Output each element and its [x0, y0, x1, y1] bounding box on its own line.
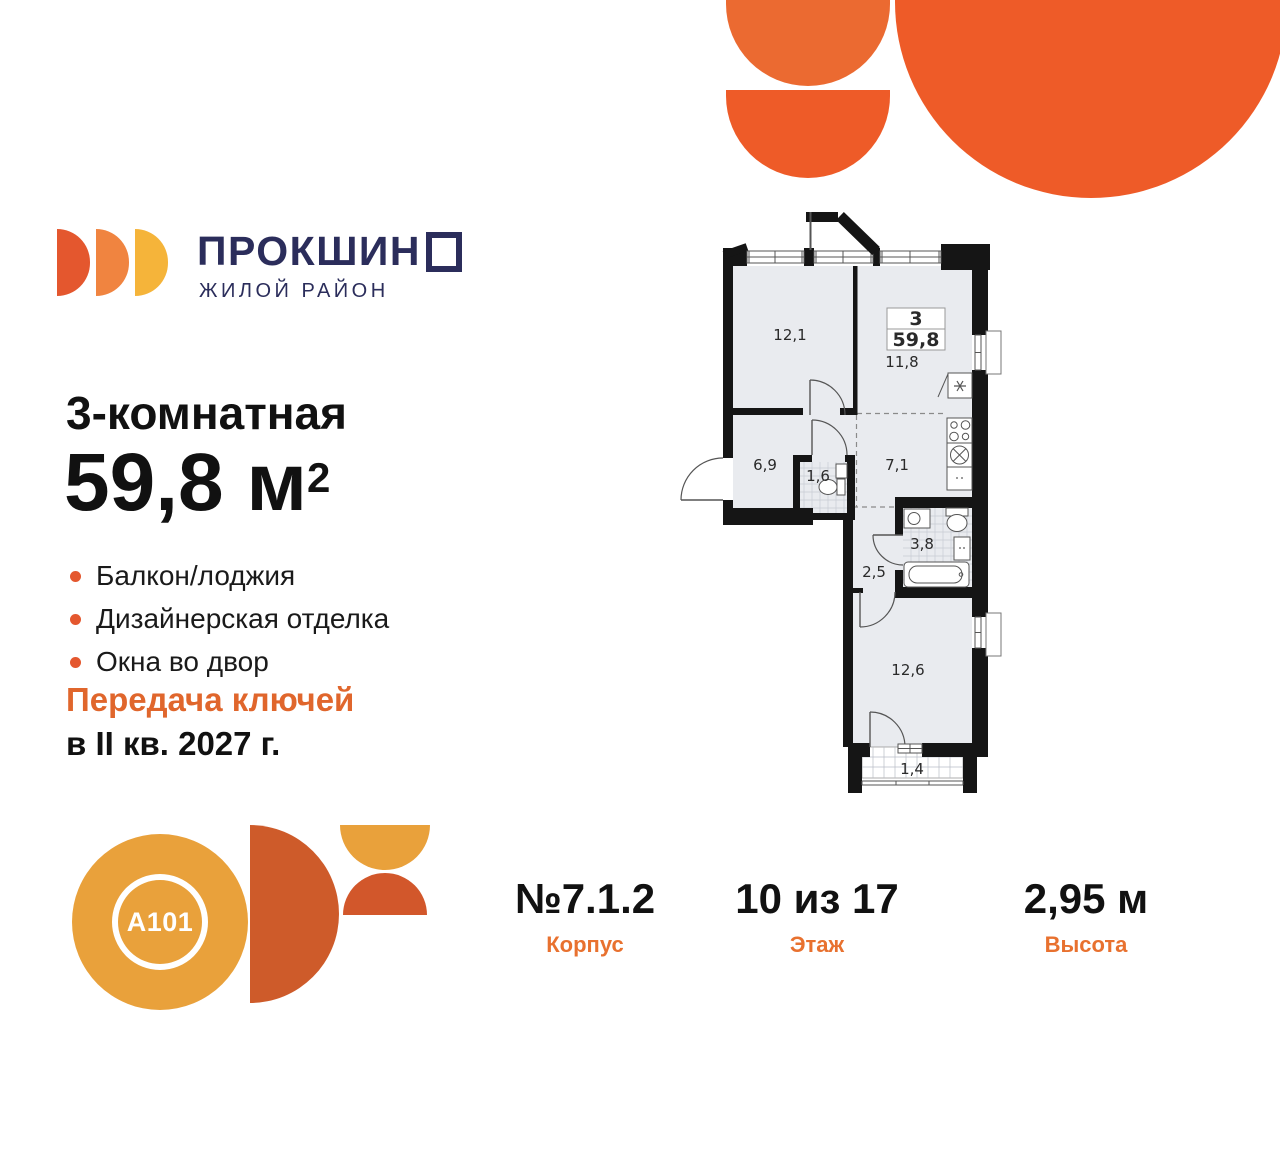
- wall: [895, 497, 988, 508]
- deco-halfcircle-small-bottom: [726, 90, 890, 178]
- wall: [853, 588, 863, 593]
- brand-subtitle: ЖИЛОЙ РАЙОН: [199, 280, 389, 303]
- feature-item: Балкон/лоджия: [70, 560, 389, 592]
- deco-halfcircle-gold: [340, 825, 430, 870]
- room-area-label: 12,6: [891, 661, 924, 679]
- feature-item: Окна во двор: [70, 646, 389, 678]
- feature-list: Балкон/лоджия Дизайнерская отделка Окна …: [70, 560, 389, 689]
- wall: [847, 455, 855, 520]
- developer-badge-ring: A101: [112, 874, 208, 970]
- stat-building-value: №7.1.2: [465, 876, 705, 922]
- counter: [947, 467, 972, 490]
- bathroom-sink: [954, 537, 970, 560]
- room-area-label: 12,1: [773, 326, 806, 344]
- wc-sink: [836, 464, 847, 478]
- stat-height: 2,95 м Высота: [966, 876, 1206, 958]
- wall: [972, 370, 988, 617]
- toilet-bowl: [947, 515, 967, 532]
- balcony-door-window: [898, 744, 922, 753]
- feature-label: Дизайнерская отделка: [96, 603, 389, 635]
- deco-halfcircle-d: [250, 825, 339, 1003]
- unit-rooms-count: 3: [909, 308, 922, 330]
- wall: [853, 266, 858, 415]
- stat-building-label: Корпус: [465, 932, 705, 958]
- counter-handle-dot: [961, 477, 963, 479]
- wall: [963, 747, 977, 793]
- sink-tap-dot: [959, 547, 961, 549]
- balcony-diagonal-wall: [840, 216, 876, 251]
- room-area-label: 1,6: [806, 467, 830, 485]
- stat-height-label: Высота: [966, 932, 1206, 958]
- room-area-label: 7,1: [885, 456, 909, 474]
- feature-item: Дизайнерская отделка: [70, 603, 389, 635]
- window: [972, 331, 1001, 374]
- listing-title: 3-комнатная: [66, 386, 347, 440]
- stat-floor: 10 из 17 Этаж: [697, 876, 937, 958]
- floor-plan: 3 59,8 12,1 11,8 6,9 1,6 7,1 3,8 2,5 12,…: [670, 200, 1010, 820]
- wall: [723, 266, 733, 458]
- room-area-label: 6,9: [753, 456, 777, 474]
- logo-petal-icon: [57, 229, 90, 296]
- wall: [843, 513, 853, 747]
- brand-wordmark: ПРОКШИНО: [197, 231, 462, 272]
- deco-halfcircle-small-top: [726, 0, 890, 86]
- room-area-label: 11,8: [885, 353, 918, 371]
- listing-area: 59,8 м2: [64, 442, 330, 524]
- wall: [895, 497, 903, 535]
- stat-floor-value: 10 из 17: [697, 876, 937, 922]
- deco-halfcircle-large: [895, 0, 1280, 198]
- logo-petal-icon: [135, 229, 168, 296]
- bullet-dot-icon: [70, 657, 81, 668]
- room-area-label: 2,5: [862, 563, 886, 581]
- brand-square-o-glyph: О: [426, 232, 462, 272]
- listing-flyer: { "logo": { "brand_main": "ПРОКШИН", "br…: [0, 0, 1280, 1160]
- keys-handover-line2: в II кв. 2027 г.: [66, 725, 280, 763]
- room-area-label: 1,4: [900, 760, 924, 778]
- toilet-tank: [837, 479, 845, 495]
- wall: [848, 747, 862, 793]
- sink-tap-dot: [963, 547, 965, 549]
- entrance-door-arc: [681, 458, 723, 500]
- deco-halfcircle-orange: [343, 873, 427, 915]
- stat-floor-label: Этаж: [697, 932, 937, 958]
- feature-label: Окна во двор: [96, 646, 269, 678]
- stat-building: №7.1.2 Корпус: [465, 876, 705, 958]
- bullet-dot-icon: [70, 571, 81, 582]
- developer-badge-label: A101: [127, 907, 194, 938]
- bullet-dot-icon: [70, 614, 81, 625]
- logo-petal-icon: [96, 229, 129, 296]
- window: [747, 251, 941, 263]
- stat-height-value: 2,95 м: [966, 876, 1206, 922]
- wall: [804, 248, 814, 266]
- feature-label: Балкон/лоджия: [96, 560, 295, 592]
- wall: [793, 455, 800, 520]
- wall: [972, 266, 988, 335]
- unit-total-area: 59,8: [893, 329, 940, 351]
- counter-handle-dot: [956, 477, 958, 479]
- balcony-railing: [862, 781, 963, 785]
- keys-handover-line1: Передача ключей: [66, 681, 354, 719]
- area-superscript: 2: [307, 454, 330, 501]
- brand-text: ПРОКШИН: [197, 231, 421, 272]
- wall: [895, 587, 988, 598]
- room-area-label: 3,8: [910, 535, 934, 553]
- wall: [972, 648, 988, 757]
- wall: [733, 408, 803, 415]
